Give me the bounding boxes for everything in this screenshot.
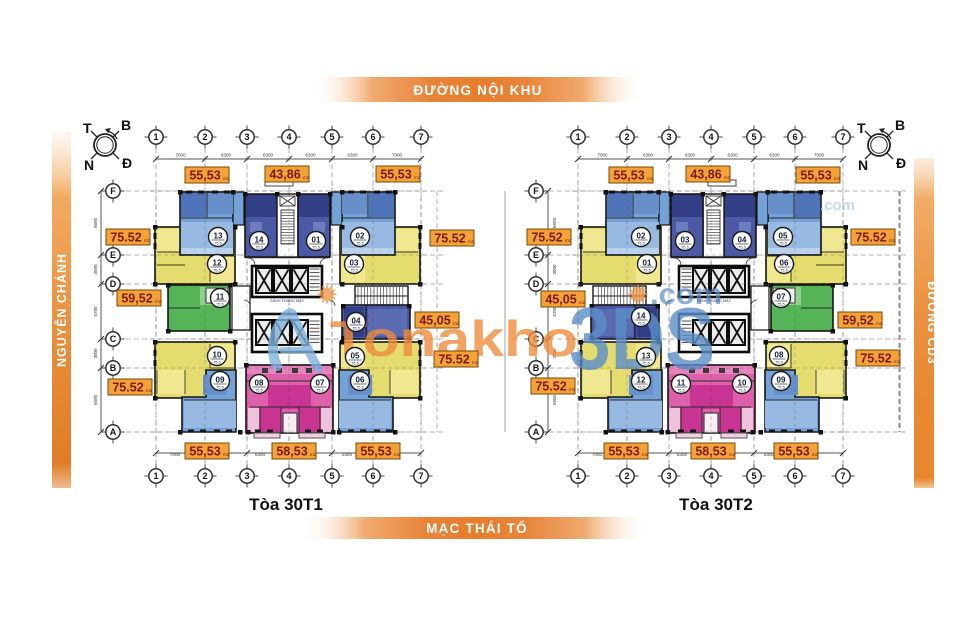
svg-text:13: 13 (214, 232, 223, 241)
svg-text:m2: m2 (414, 175, 421, 180)
svg-text:F: F (533, 186, 539, 196)
svg-text:55,53: 55,53 (380, 168, 411, 182)
svg-text:7000: 7000 (392, 153, 403, 158)
svg-text:75,5: 75,5 (216, 303, 223, 307)
svg-text:07: 07 (316, 379, 325, 388)
svg-text:75,5: 75,5 (316, 389, 323, 393)
svg-text:N: N (84, 157, 94, 173)
svg-text:m2: m2 (394, 452, 401, 457)
svg-text:75,5: 75,5 (677, 389, 684, 393)
svg-text:11: 11 (216, 293, 225, 302)
svg-text:B: B (895, 117, 905, 133)
svg-text:1: 1 (153, 132, 158, 142)
svg-text:3000: 3000 (93, 264, 98, 275)
svg-text:6300: 6300 (677, 452, 688, 457)
svg-text:75,5: 75,5 (643, 269, 650, 273)
svg-text:12: 12 (637, 376, 646, 385)
svg-text:MẠC THÁI TỔ: MẠC THÁI TỔ (426, 521, 528, 536)
svg-text:1: 1 (153, 471, 158, 481)
svg-text:5: 5 (751, 471, 756, 481)
svg-text:m2: m2 (894, 359, 901, 364)
svg-text:55,53: 55,53 (189, 169, 220, 183)
svg-text:m2: m2 (144, 238, 151, 243)
svg-text:06: 06 (356, 376, 365, 385)
svg-text:Tòa 30T2: Tòa 30T2 (679, 495, 753, 514)
svg-text:3: 3 (666, 471, 671, 481)
svg-text:m2: m2 (569, 387, 576, 392)
svg-text:7000: 7000 (814, 153, 825, 158)
svg-text:55,53: 55,53 (613, 169, 644, 183)
svg-text:75,5: 75,5 (213, 269, 220, 273)
svg-text:7: 7 (418, 471, 423, 481)
svg-text:14: 14 (255, 236, 264, 245)
svg-text:6300: 6300 (769, 153, 780, 158)
svg-text:12: 12 (213, 259, 222, 268)
svg-text:4: 4 (708, 471, 713, 481)
svg-text:75,5: 75,5 (312, 246, 319, 250)
svg-text:75.52: 75.52 (535, 380, 566, 394)
svg-text:6300: 6300 (305, 153, 316, 158)
svg-text:75,5: 75,5 (637, 242, 644, 246)
svg-text:75,5: 75,5 (356, 242, 363, 246)
svg-text:75,5: 75,5 (642, 362, 649, 366)
svg-text:07: 07 (777, 293, 786, 302)
svg-text:75,5: 75,5 (213, 361, 220, 365)
svg-text:3: 3 (244, 132, 249, 142)
svg-text:09: 09 (777, 376, 786, 385)
svg-text:09: 09 (216, 376, 225, 385)
svg-text:7000: 7000 (597, 153, 608, 158)
svg-text:2: 2 (202, 471, 207, 481)
svg-text:14: 14 (637, 312, 646, 321)
svg-text:5: 5 (329, 471, 334, 481)
svg-text:m2: m2 (565, 238, 572, 243)
svg-text:05: 05 (779, 232, 788, 241)
svg-text:✹: ✹ (627, 282, 649, 309)
svg-text:SẢNH THANG MÁY: SẢNH THANG MÁY (270, 298, 305, 303)
svg-text:A: A (110, 427, 117, 437)
svg-text:5700: 5700 (93, 306, 98, 317)
svg-text:6300: 6300 (764, 452, 775, 457)
svg-text:T: T (83, 120, 92, 136)
svg-text:✹: ✹ (316, 282, 338, 309)
svg-text:.com: .com (820, 197, 855, 214)
svg-text:45,05: 45,05 (419, 314, 450, 328)
svg-text:6: 6 (792, 471, 797, 481)
svg-text:1: 1 (575, 132, 580, 142)
svg-text:7: 7 (840, 471, 845, 481)
svg-text:75,5: 75,5 (214, 242, 221, 246)
svg-text:6600: 6600 (93, 217, 98, 228)
svg-text:D: D (533, 279, 540, 289)
svg-text:m2: m2 (453, 321, 460, 326)
svg-text:55,53: 55,53 (800, 169, 831, 183)
svg-text:6600: 6600 (93, 394, 98, 405)
svg-text:03: 03 (350, 259, 359, 268)
svg-text:4: 4 (708, 132, 713, 142)
svg-text:m2: m2 (724, 175, 731, 180)
svg-text:ĐƯỜNG CD3: ĐƯỜNG CD3 (925, 281, 940, 364)
svg-text:08: 08 (775, 351, 784, 360)
svg-text:6: 6 (370, 132, 375, 142)
svg-text:m2: m2 (579, 300, 586, 305)
svg-text:6300: 6300 (643, 153, 654, 158)
svg-text:43,86: 43,86 (690, 168, 721, 182)
svg-text:08: 08 (255, 379, 264, 388)
svg-text:05: 05 (351, 352, 360, 361)
svg-text:6300: 6300 (347, 153, 358, 158)
svg-text:7000: 7000 (170, 452, 181, 457)
svg-text:3000: 3000 (93, 348, 98, 359)
svg-text:75.52: 75.52 (438, 353, 469, 367)
svg-text:m2: m2 (876, 321, 883, 326)
svg-text:SẢNH THANG MÁY: SẢNH THANG MÁY (697, 298, 732, 303)
svg-text:01: 01 (312, 236, 321, 245)
svg-text:2: 2 (202, 132, 207, 142)
svg-text:6300: 6300 (255, 452, 266, 457)
svg-text:5: 5 (329, 132, 334, 142)
svg-text:7: 7 (840, 132, 845, 142)
svg-text:6300: 6300 (221, 153, 232, 158)
svg-text:Tòa 30T1: Tòa 30T1 (249, 495, 323, 514)
svg-text:m2: m2 (834, 176, 841, 181)
svg-text:75.52: 75.52 (860, 352, 891, 366)
svg-text:C: C (110, 334, 117, 344)
svg-text:01: 01 (643, 259, 652, 268)
svg-text:6: 6 (792, 132, 797, 142)
svg-text:75,5: 75,5 (637, 386, 644, 390)
svg-text:m2: m2 (223, 452, 230, 457)
svg-text:02: 02 (637, 232, 646, 241)
svg-text:75,5: 75,5 (351, 362, 358, 366)
svg-text:m2: m2 (303, 175, 310, 180)
svg-text:55,53: 55,53 (778, 445, 809, 459)
svg-text:7000: 7000 (175, 153, 186, 158)
svg-text:75,5: 75,5 (255, 389, 262, 393)
svg-text:55,53: 55,53 (189, 445, 220, 459)
svg-text:6300: 6300 (685, 153, 696, 158)
svg-text:m2: m2 (812, 452, 819, 457)
svg-text:6: 6 (370, 471, 375, 481)
svg-text:m2: m2 (889, 238, 896, 243)
svg-text:2: 2 (624, 471, 629, 481)
svg-text:E: E (110, 250, 116, 260)
svg-text:6600: 6600 (552, 217, 557, 228)
svg-text:55,53: 55,53 (608, 445, 639, 459)
svg-text:m2: m2 (146, 388, 153, 393)
svg-text:02: 02 (356, 232, 365, 241)
svg-text:6300: 6300 (342, 452, 353, 457)
svg-text:04: 04 (352, 317, 361, 326)
svg-text:58,53: 58,53 (276, 445, 307, 459)
svg-text:75,5: 75,5 (775, 361, 782, 365)
svg-text:75.52: 75.52 (110, 231, 141, 245)
svg-text:m2: m2 (310, 452, 317, 457)
svg-text:T: T (857, 120, 866, 136)
svg-text:m2: m2 (472, 360, 479, 365)
svg-text:55,53: 55,53 (360, 445, 391, 459)
svg-text:75,5: 75,5 (216, 386, 223, 390)
svg-text:75,5: 75,5 (777, 303, 784, 307)
svg-text:2: 2 (624, 132, 629, 142)
svg-text:43,86: 43,86 (269, 168, 300, 182)
svg-text:Đ: Đ (122, 155, 132, 171)
svg-text:5: 5 (751, 132, 756, 142)
svg-text:11: 11 (677, 379, 686, 388)
svg-text:13: 13 (642, 352, 651, 361)
svg-text:75.52: 75.52 (531, 231, 562, 245)
svg-text:7: 7 (418, 132, 423, 142)
svg-text:m2: m2 (155, 299, 162, 304)
svg-text:A: A (533, 427, 540, 437)
svg-text:75,5: 75,5 (356, 386, 363, 390)
svg-text:m2: m2 (642, 452, 649, 457)
svg-text:75,5: 75,5 (681, 246, 688, 250)
svg-text:03: 03 (681, 236, 690, 245)
svg-text:75,5: 75,5 (738, 246, 745, 250)
svg-text:B: B (121, 117, 131, 133)
svg-text:75.52: 75.52 (855, 231, 886, 245)
svg-text:D: D (110, 279, 117, 289)
svg-text:6600: 6600 (552, 394, 557, 405)
svg-text:m2: m2 (647, 176, 654, 181)
svg-text:7000: 7000 (592, 452, 603, 457)
svg-text:3: 3 (666, 132, 671, 142)
svg-text:10: 10 (738, 379, 747, 388)
svg-text:75,5: 75,5 (738, 389, 745, 393)
svg-text:m2: m2 (223, 176, 230, 181)
svg-text:75,5: 75,5 (779, 242, 786, 246)
svg-text:3000: 3000 (552, 264, 557, 275)
svg-text:4: 4 (286, 132, 291, 142)
svg-text:75,5: 75,5 (637, 322, 644, 326)
svg-text:N: N (858, 157, 868, 173)
svg-text:59,52: 59,52 (842, 314, 873, 328)
svg-text:Đ: Đ (896, 155, 906, 171)
svg-text:45,05: 45,05 (545, 293, 576, 307)
svg-text:3: 3 (244, 471, 249, 481)
svg-text:m2: m2 (729, 452, 736, 457)
svg-text:6300: 6300 (727, 153, 738, 158)
svg-text:75,5: 75,5 (777, 386, 784, 390)
svg-text:58,53: 58,53 (695, 445, 726, 459)
svg-text:06: 06 (780, 259, 789, 268)
svg-text:6300: 6300 (263, 153, 274, 158)
svg-text:75.52: 75.52 (434, 232, 465, 246)
svg-text:75,5: 75,5 (780, 269, 787, 273)
svg-text:75,5: 75,5 (255, 246, 262, 250)
svg-text:1: 1 (575, 471, 580, 481)
svg-text:75.52: 75.52 (112, 381, 143, 395)
svg-text:ĐƯỜNG NỘI KHU: ĐƯỜNG NỘI KHU (413, 83, 542, 98)
svg-text:B: B (110, 363, 117, 373)
svg-text:4: 4 (286, 471, 291, 481)
svg-text:NGUYỄN CHÁNH: NGUYỄN CHÁNH (54, 253, 69, 367)
svg-text:m2: m2 (468, 239, 475, 244)
svg-text:F: F (110, 186, 116, 196)
svg-text:59,52: 59,52 (121, 292, 152, 306)
svg-text:04: 04 (738, 236, 747, 245)
svg-text:75,5: 75,5 (350, 269, 357, 273)
svg-text:75,5: 75,5 (352, 327, 359, 331)
svg-text:E: E (533, 250, 539, 260)
svg-text:10: 10 (213, 351, 222, 360)
